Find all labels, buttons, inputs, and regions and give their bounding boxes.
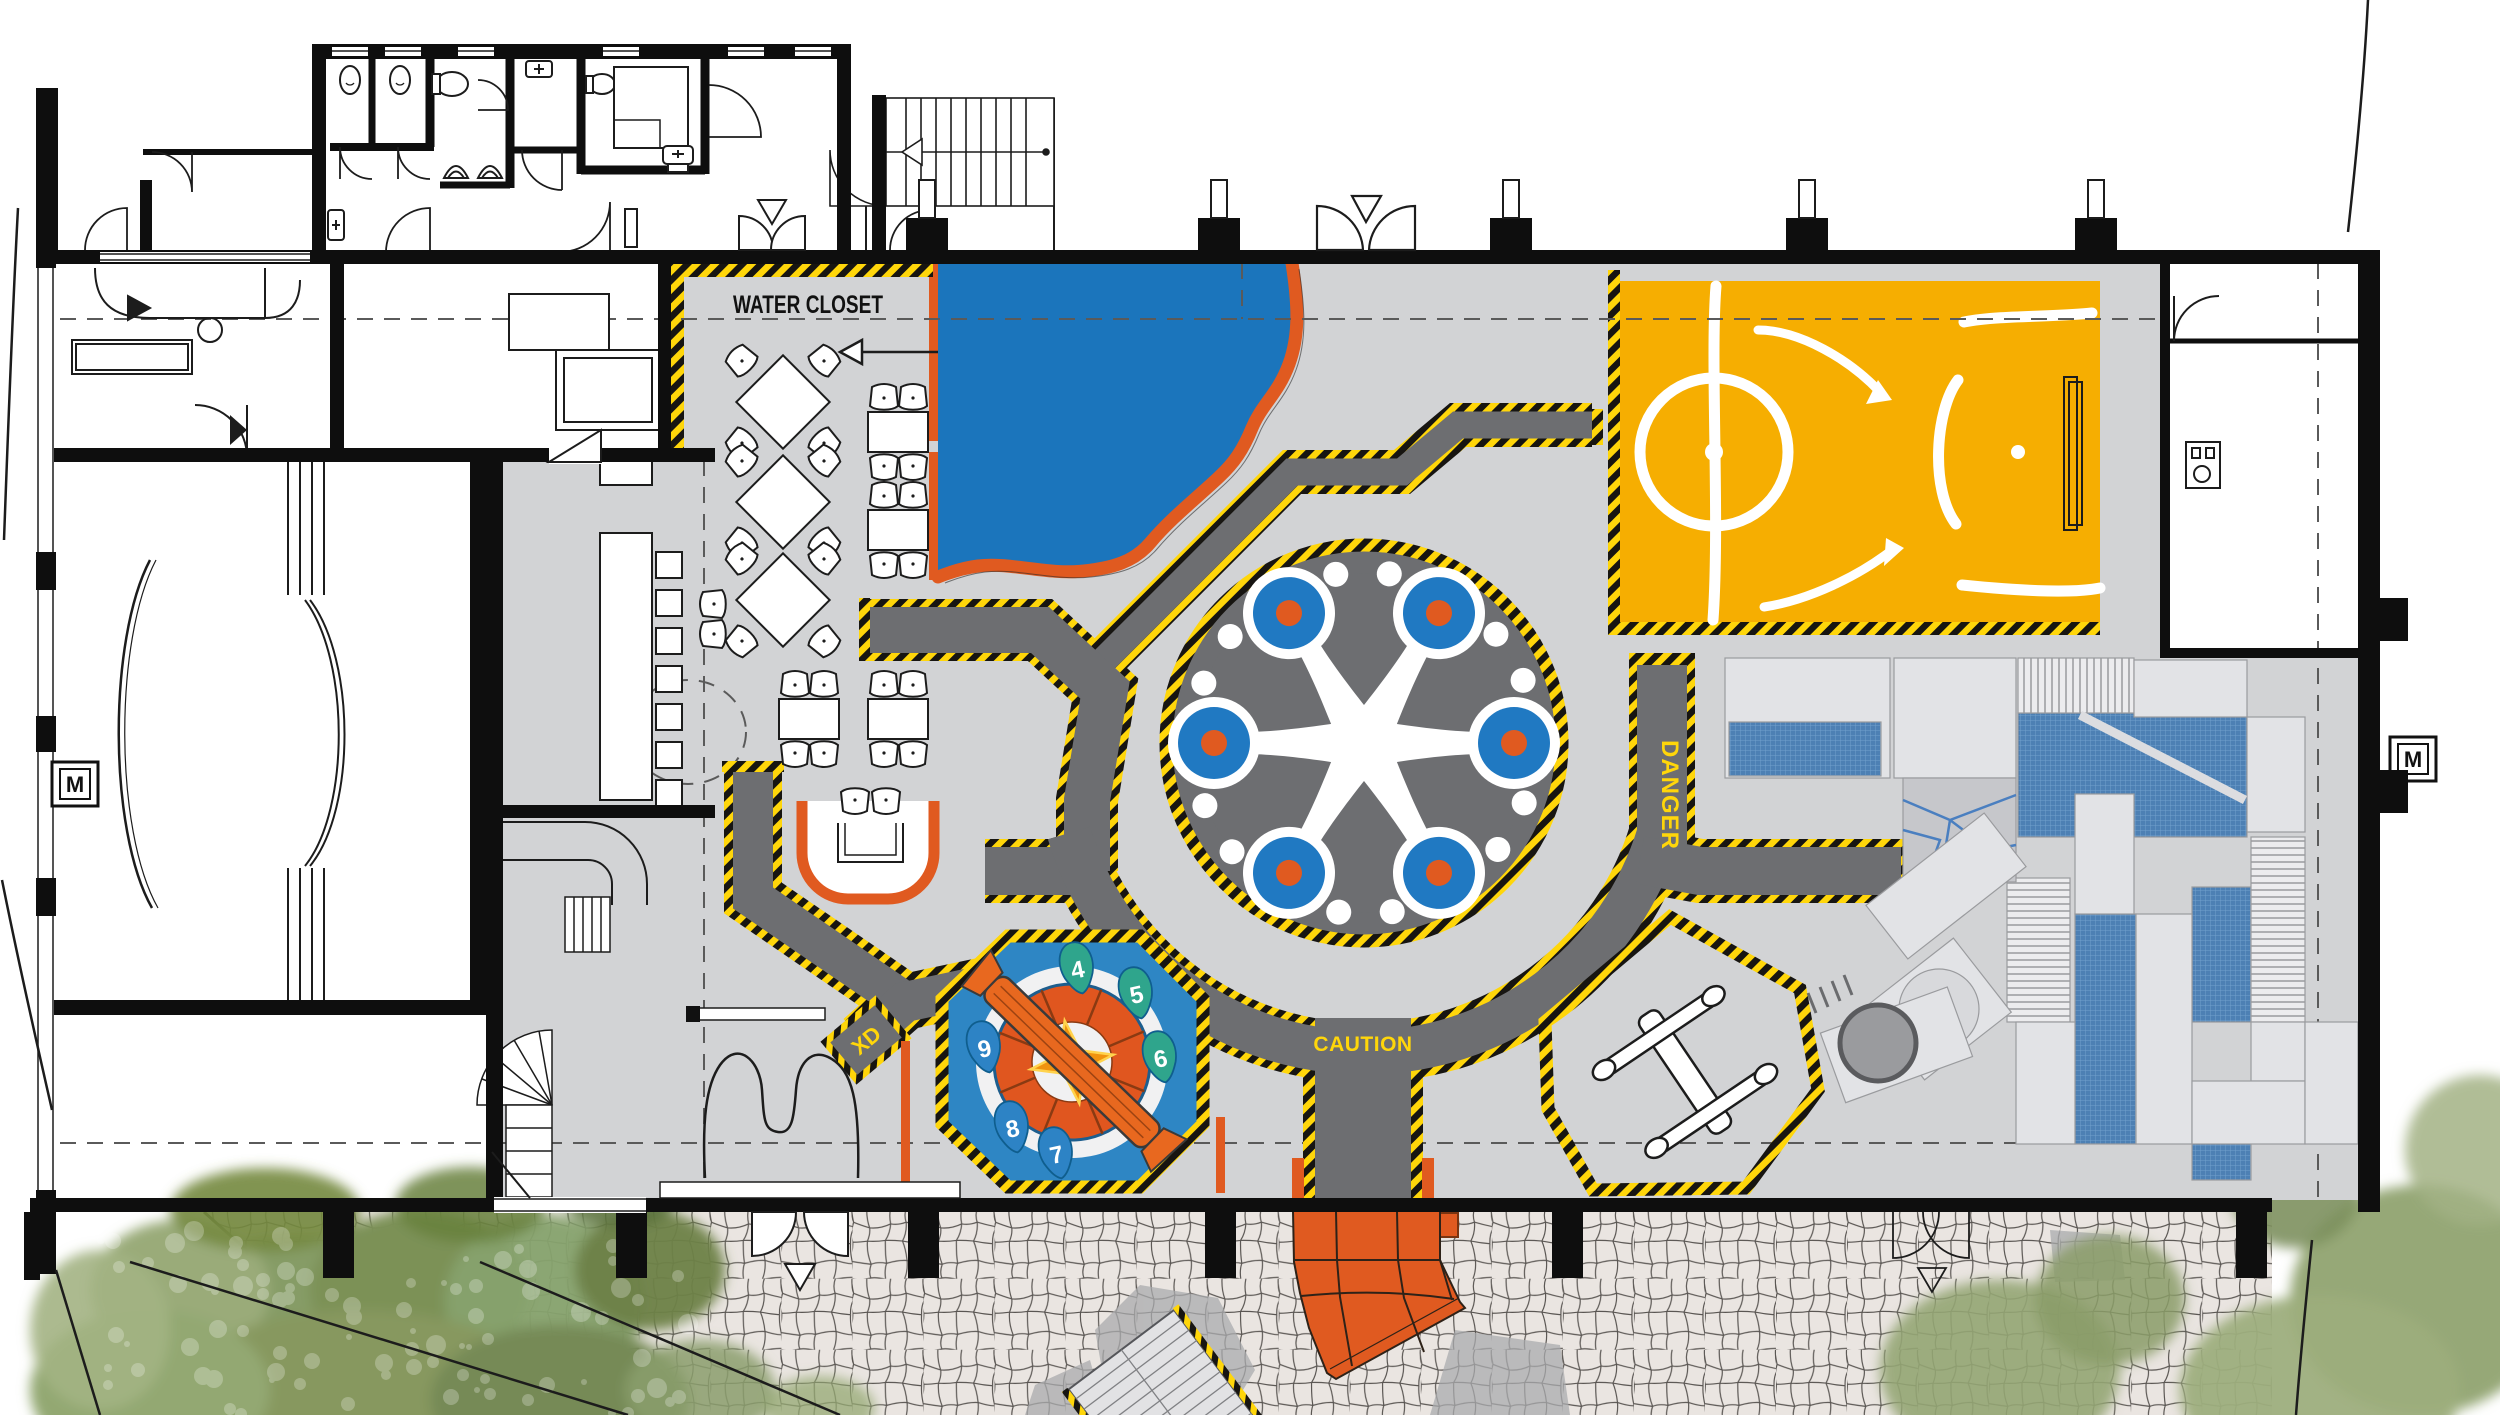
svg-text:CAUTION: CAUTION xyxy=(1313,1033,1412,1056)
svg-text:M: M xyxy=(66,772,84,797)
svg-text:DANGER: DANGER xyxy=(1656,740,1683,850)
svg-text:WATER CLOSET: WATER CLOSET xyxy=(733,291,883,319)
svg-text:M: M xyxy=(2404,747,2422,772)
